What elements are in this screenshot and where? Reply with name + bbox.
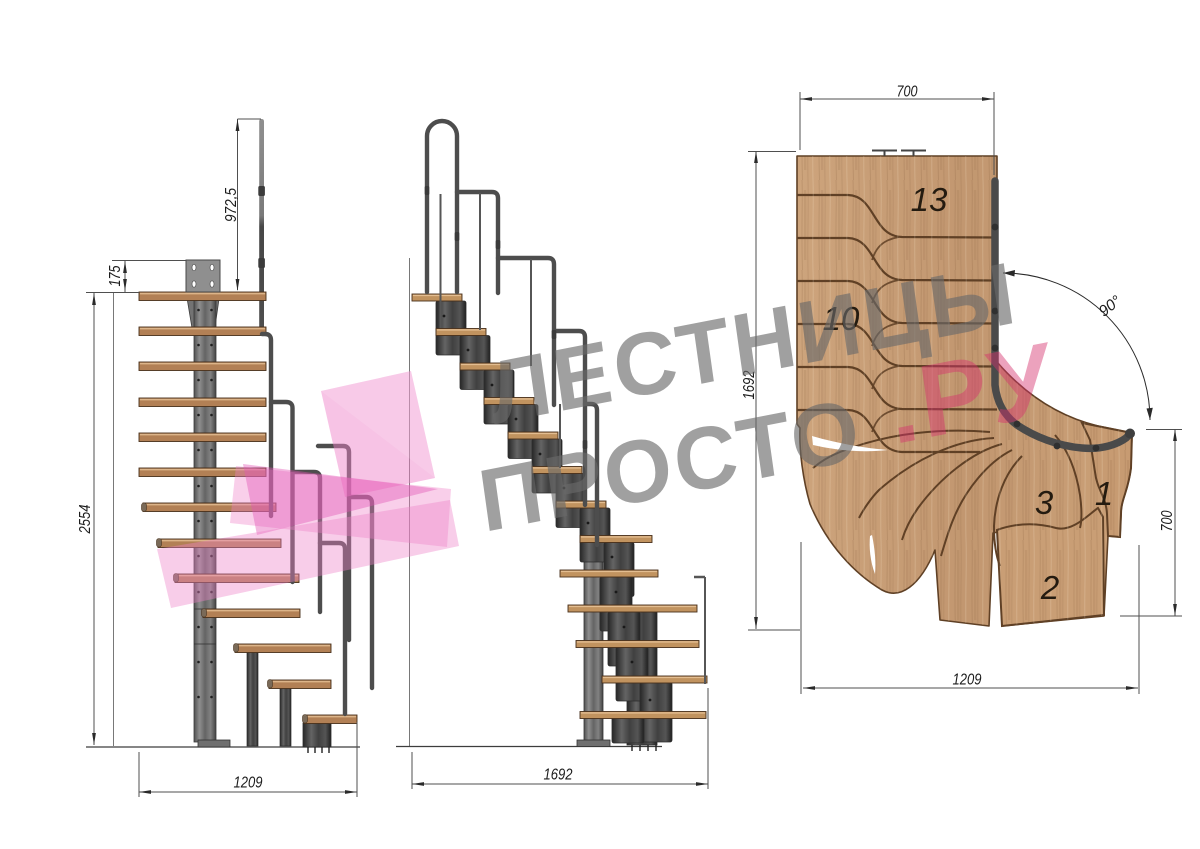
svg-text:175: 175 [107, 265, 124, 286]
svg-text:13: 13 [911, 181, 948, 218]
svg-text:1: 1 [1095, 475, 1113, 512]
svg-text:2554: 2554 [77, 504, 94, 534]
svg-text:2: 2 [1040, 569, 1059, 606]
svg-text:972,5: 972,5 [223, 188, 240, 222]
svg-text:1209: 1209 [953, 672, 982, 689]
svg-text:1692: 1692 [544, 767, 573, 784]
svg-text:700: 700 [897, 84, 918, 101]
svg-text:3: 3 [1035, 484, 1054, 521]
svg-text:700: 700 [1159, 510, 1176, 531]
svg-text:1209: 1209 [234, 775, 263, 792]
